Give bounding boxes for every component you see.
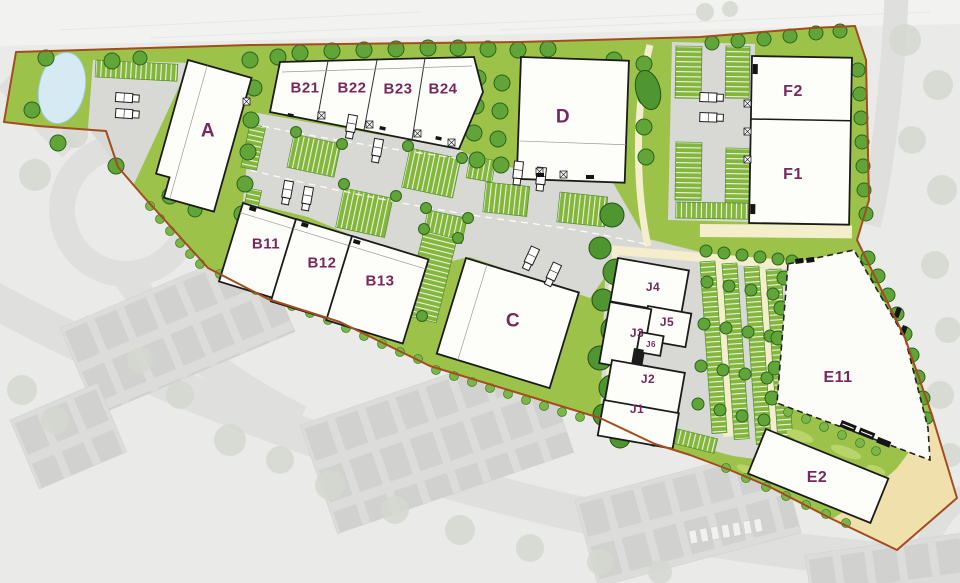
building-label-j6: J6 bbox=[646, 341, 656, 349]
building-label-j5: J5 bbox=[660, 316, 674, 328]
site-plan-canvas: A B21 B22 B23 B24 B11 B12 B13 C D F2 F1 … bbox=[0, 0, 960, 583]
building-label-b22: B22 bbox=[337, 81, 366, 96]
building-label-d: D bbox=[556, 108, 570, 127]
building-label-e2: E2 bbox=[807, 470, 828, 486]
building-label-b21: B21 bbox=[290, 81, 319, 96]
building-label-c: C bbox=[506, 312, 520, 331]
building-label-b11: B11 bbox=[252, 237, 280, 252]
building-label-f2: F2 bbox=[783, 84, 803, 100]
building-label-b24: B24 bbox=[428, 82, 457, 97]
building-label-j3: J3 bbox=[630, 327, 644, 339]
building-label-a: A bbox=[201, 122, 215, 141]
building-label-b12: B12 bbox=[307, 256, 336, 271]
building-d bbox=[517, 57, 629, 183]
building-label-e11: E11 bbox=[823, 370, 852, 386]
building-f1-f2 bbox=[749, 56, 852, 225]
building-label-j4: J4 bbox=[646, 281, 660, 293]
site-plan-drawing bbox=[0, 0, 960, 583]
building-label-j1: J1 bbox=[630, 403, 644, 415]
building-label-b23: B23 bbox=[383, 82, 412, 97]
building-label-b13: B13 bbox=[365, 274, 394, 289]
building-label-j2: J2 bbox=[641, 373, 655, 385]
building-label-f1: F1 bbox=[783, 167, 803, 183]
